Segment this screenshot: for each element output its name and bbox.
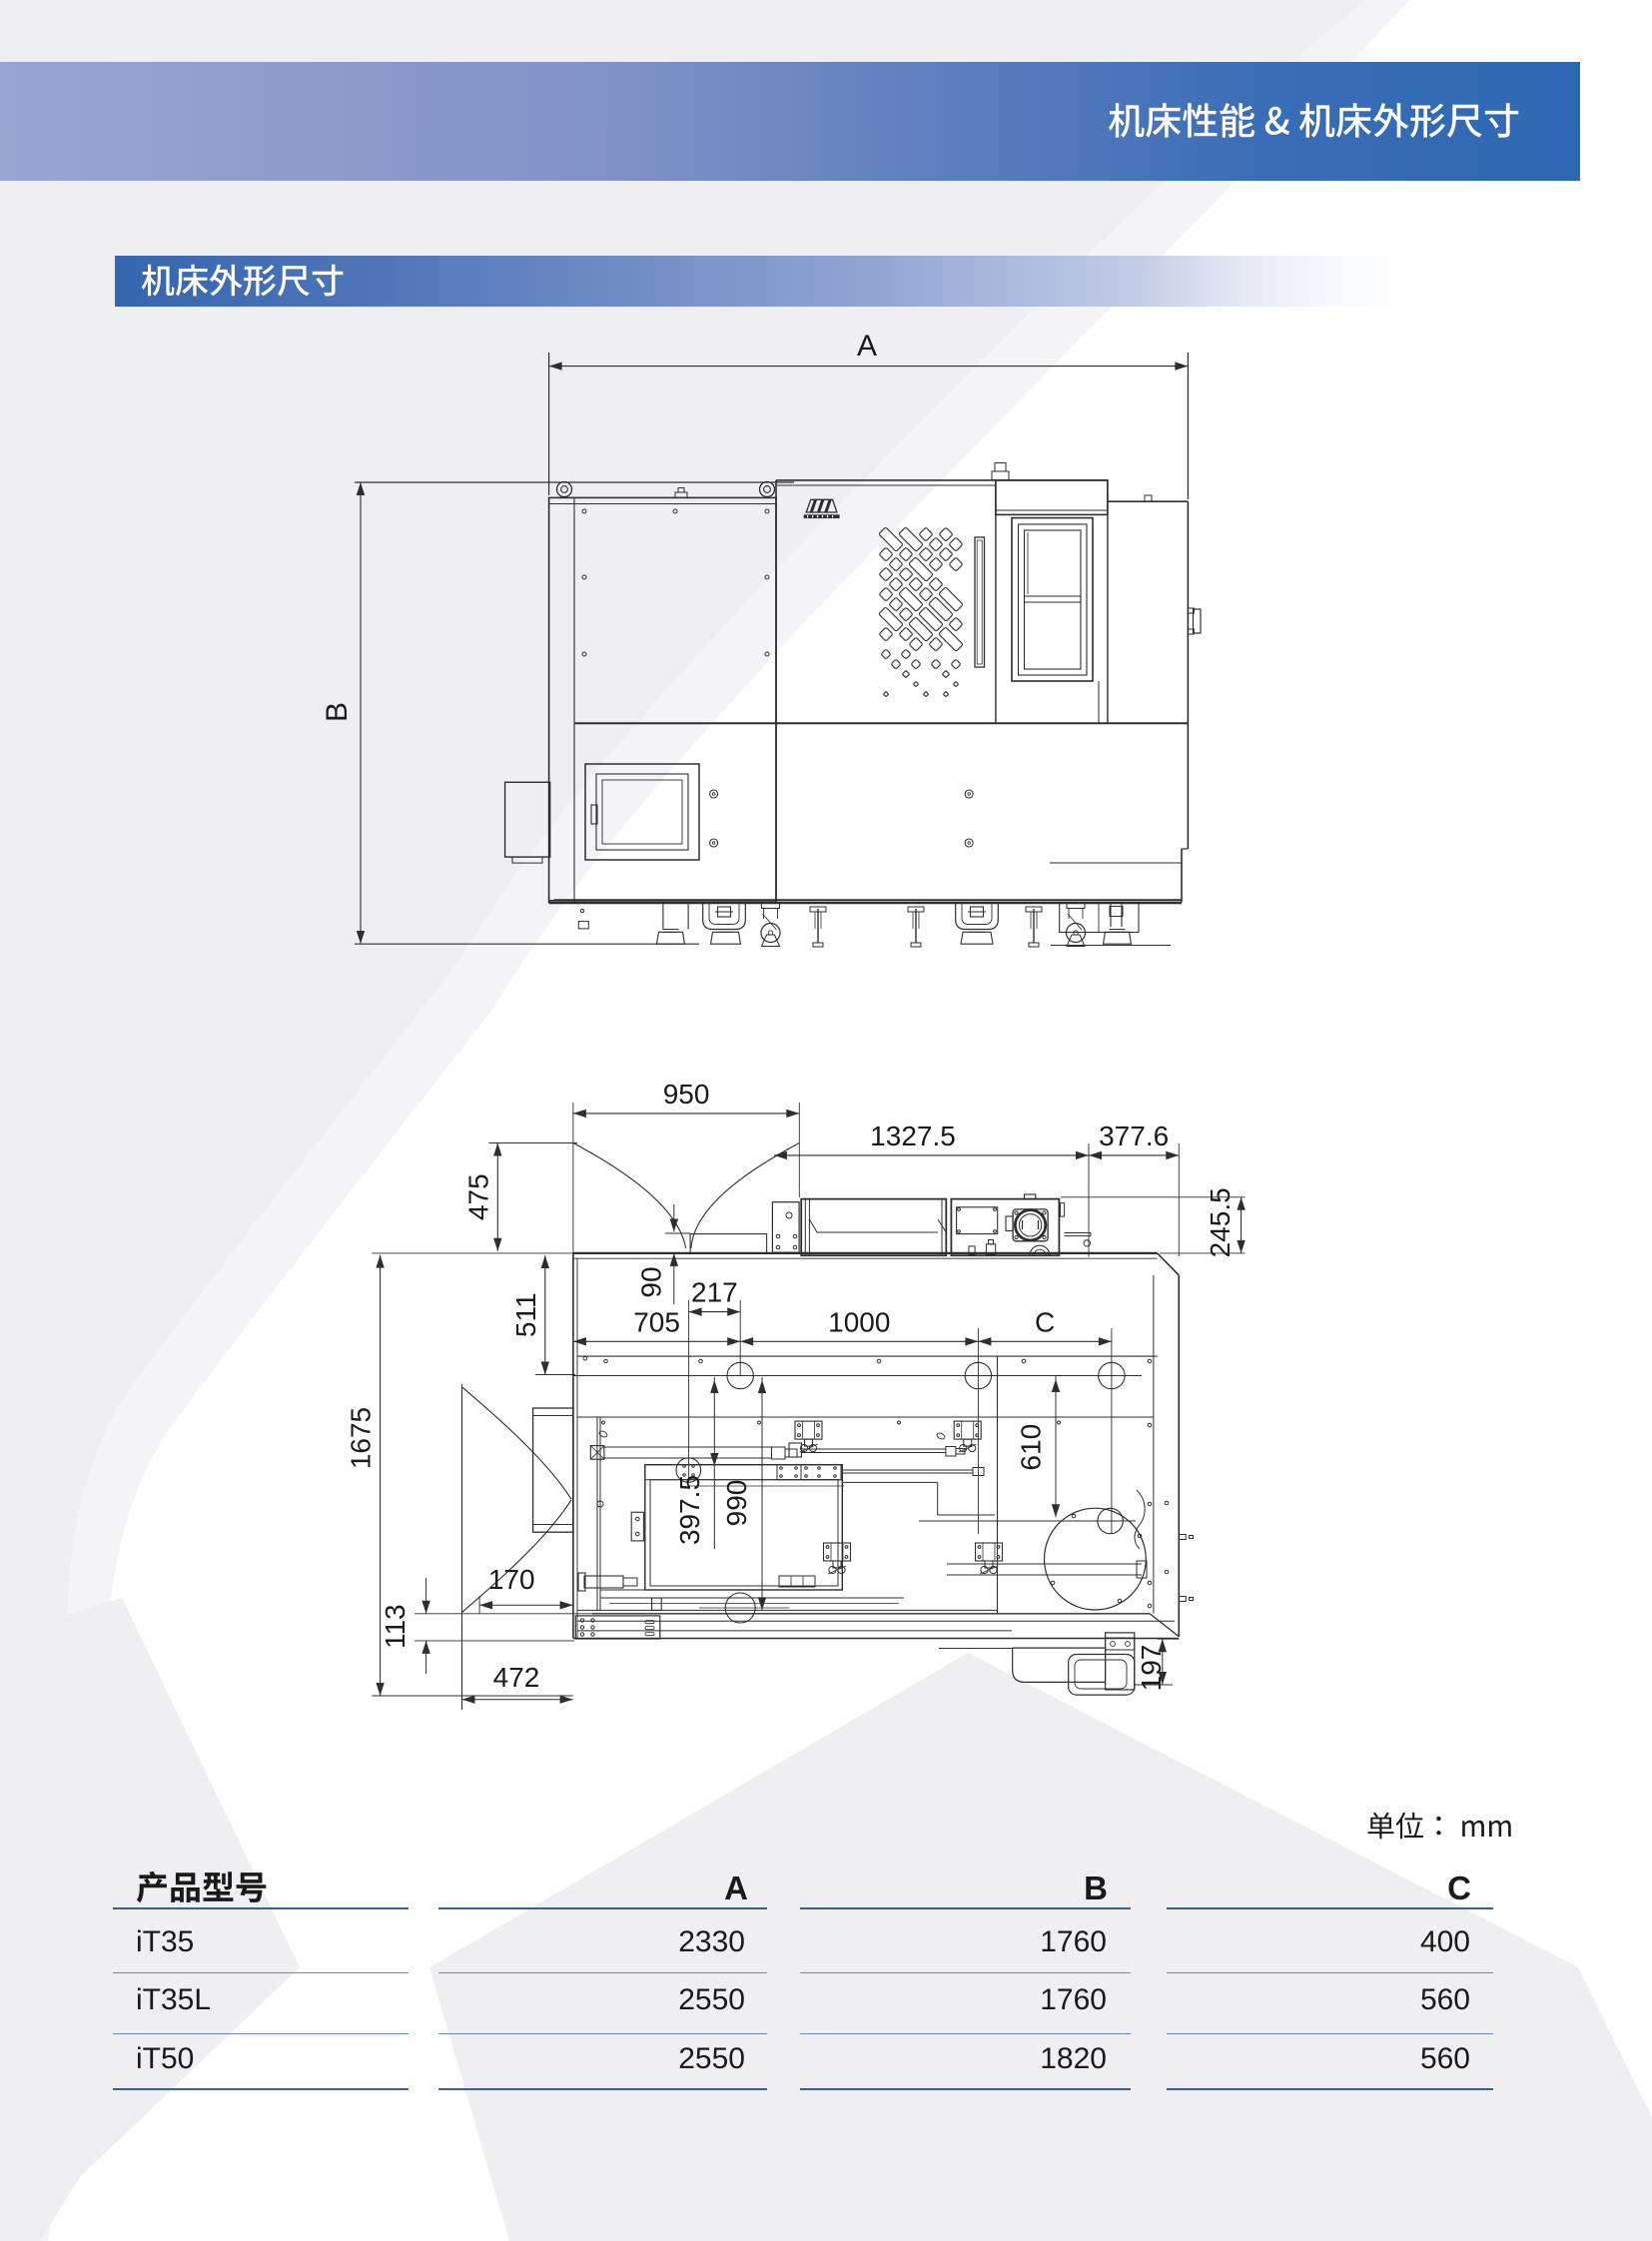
svg-text:245.5: 245.5	[1205, 1187, 1236, 1257]
svg-text:610: 610	[1016, 1424, 1047, 1471]
svg-text:1675: 1675	[346, 1407, 377, 1469]
svg-text:511: 511	[510, 1292, 541, 1337]
svg-text:170: 170	[488, 1564, 535, 1595]
svg-text:217: 217	[691, 1277, 738, 1308]
svg-text:90: 90	[635, 1266, 666, 1297]
svg-text:C: C	[1035, 1306, 1055, 1337]
svg-text:377.6: 377.6	[1099, 1120, 1169, 1151]
svg-text:B: B	[321, 702, 354, 722]
svg-text:113: 113	[380, 1604, 411, 1649]
svg-text:1000: 1000	[828, 1306, 890, 1337]
svg-text:A: A	[857, 330, 877, 363]
svg-text:1327.5: 1327.5	[870, 1120, 956, 1151]
svg-text:705: 705	[633, 1306, 680, 1337]
svg-text:397.5: 397.5	[674, 1475, 705, 1545]
svg-text:197: 197	[1136, 1645, 1167, 1692]
svg-text:475: 475	[462, 1173, 493, 1220]
svg-text:472: 472	[493, 1662, 540, 1693]
svg-text:990: 990	[721, 1480, 752, 1527]
svg-text:950: 950	[663, 1079, 710, 1110]
